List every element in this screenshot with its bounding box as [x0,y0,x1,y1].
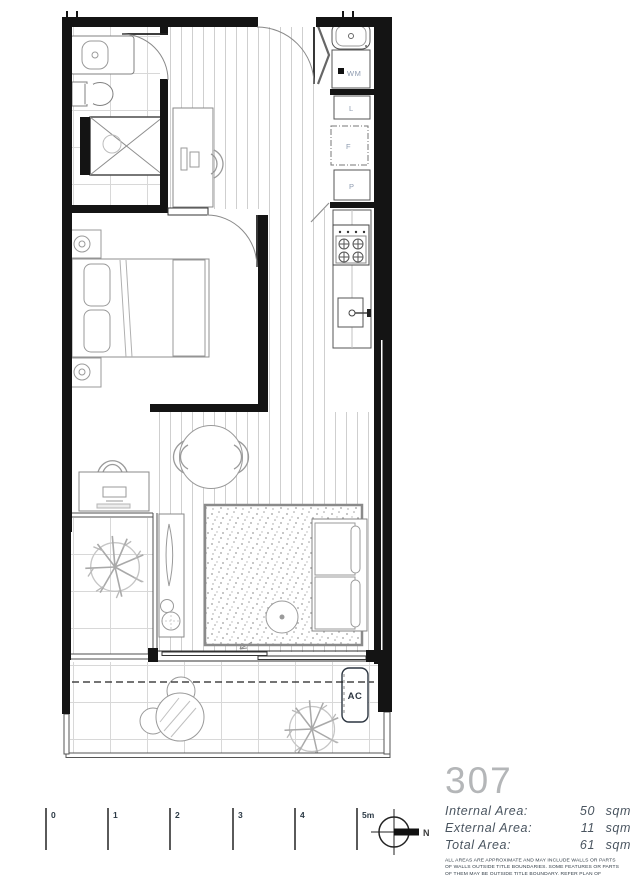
area-value: 61 [563,838,595,852]
north-arrow: N [371,809,430,855]
scale-tick: 4 [295,808,305,850]
basin [82,41,108,69]
pillow [84,264,110,306]
linen-label: L [349,104,354,113]
area-label: Internal Area: [445,804,563,818]
terrace-glass-wall [153,513,157,650]
ac-label: AC [348,691,363,702]
unit-number: 307 [445,762,631,799]
washing-machine-icon [338,68,344,74]
monitor-icon [181,148,187,170]
toilet [72,82,113,106]
terrace-balustrade [70,654,152,659]
area-value: 11 [563,821,595,835]
wall-right [374,17,392,664]
wall-left [62,17,72,532]
sofa-cushion [315,523,355,575]
wall-shower-nib [80,117,90,175]
floor-plan-page: WM L F P [0,0,636,877]
area-label: External Area: [445,821,563,835]
dining-table [180,426,243,489]
wall-bedroom-north-nib [168,208,208,215]
area-table: Internal Area: 50 sqm External Area: 11 … [445,804,631,852]
wall-bathroom-east [160,79,168,205]
scale-tick: 3 [233,808,243,850]
shower [90,117,163,175]
area-unit: sqm [595,838,631,852]
cooktop [333,225,369,265]
scale-tick: 1 [108,808,118,850]
wall-bedroom-east [258,215,268,405]
terrace-floor [70,518,153,654]
disclaimer-text: ALL AREAS ARE APPROXIMATE AND MAY INCLUD… [445,857,620,877]
sliding-door-panel [162,652,267,656]
washing-machine: WM [332,50,370,88]
nook-chair [98,461,127,472]
pantry: P [334,170,370,200]
bedroom-door [207,215,257,267]
area-row-external: External Area: 11 sqm [445,821,631,835]
lamp-icon [280,615,285,620]
scale-tick-label: 3 [238,810,243,820]
area-row-total: Total Area: 61 sqm [445,838,631,852]
scale-tick-label: 0 [51,810,56,820]
pillow [84,310,110,352]
scale-bar: 0 1 2 3 4 5m [46,808,375,850]
laundry-bifold-door [318,26,329,84]
sink-tap-icon [367,309,371,317]
scale-tick: 5m [357,808,375,850]
scale-tick-label: 1 [113,810,118,820]
washing-machine-label: WM [347,69,361,78]
sliding-door-panel [258,656,366,660]
scale-tick: 0 [46,808,56,850]
scale-tick-label: 4 [300,810,305,820]
bed [72,259,209,357]
fridge: F [331,126,368,165]
ac-unit: AC [342,668,368,722]
unit-legend: 307 Internal Area: 50 sqm External Area:… [445,762,631,877]
monitor-icon [103,487,126,497]
area-row-internal: Internal Area: 50 sqm [445,804,631,818]
tv-unit [159,514,184,637]
area-unit: sqm [595,821,631,835]
pantry-label: P [349,182,355,191]
study-nook [79,461,149,511]
scale-tick: 2 [170,808,180,850]
sofa [312,519,367,631]
floor-plan-drawing: WM L F P [0,0,636,877]
sofa-cushion [315,577,355,629]
bed-throw [173,260,205,356]
scale-tick-label: 2 [175,810,180,820]
north-label: N [423,828,430,838]
nook-window [70,513,153,517]
kitchen-bench [333,210,371,348]
north-pointer-icon [394,829,419,836]
floor-lamp [266,601,298,633]
sliding-door [158,651,374,661]
scale-tick-label: 5m [362,810,375,820]
area-label: Total Area: [445,838,563,852]
linen-cupboard: L [334,96,370,119]
wall-top [62,17,258,27]
wall-bathroom-south [62,205,168,213]
fridge-label: F [346,142,351,151]
kitchen-corridor-floor [268,209,333,415]
keyboard-icon [97,504,130,508]
area-unit: sqm [595,804,631,818]
bedroom [64,230,209,387]
area-value: 50 [563,804,595,818]
wall-bedroom-south [150,404,268,412]
